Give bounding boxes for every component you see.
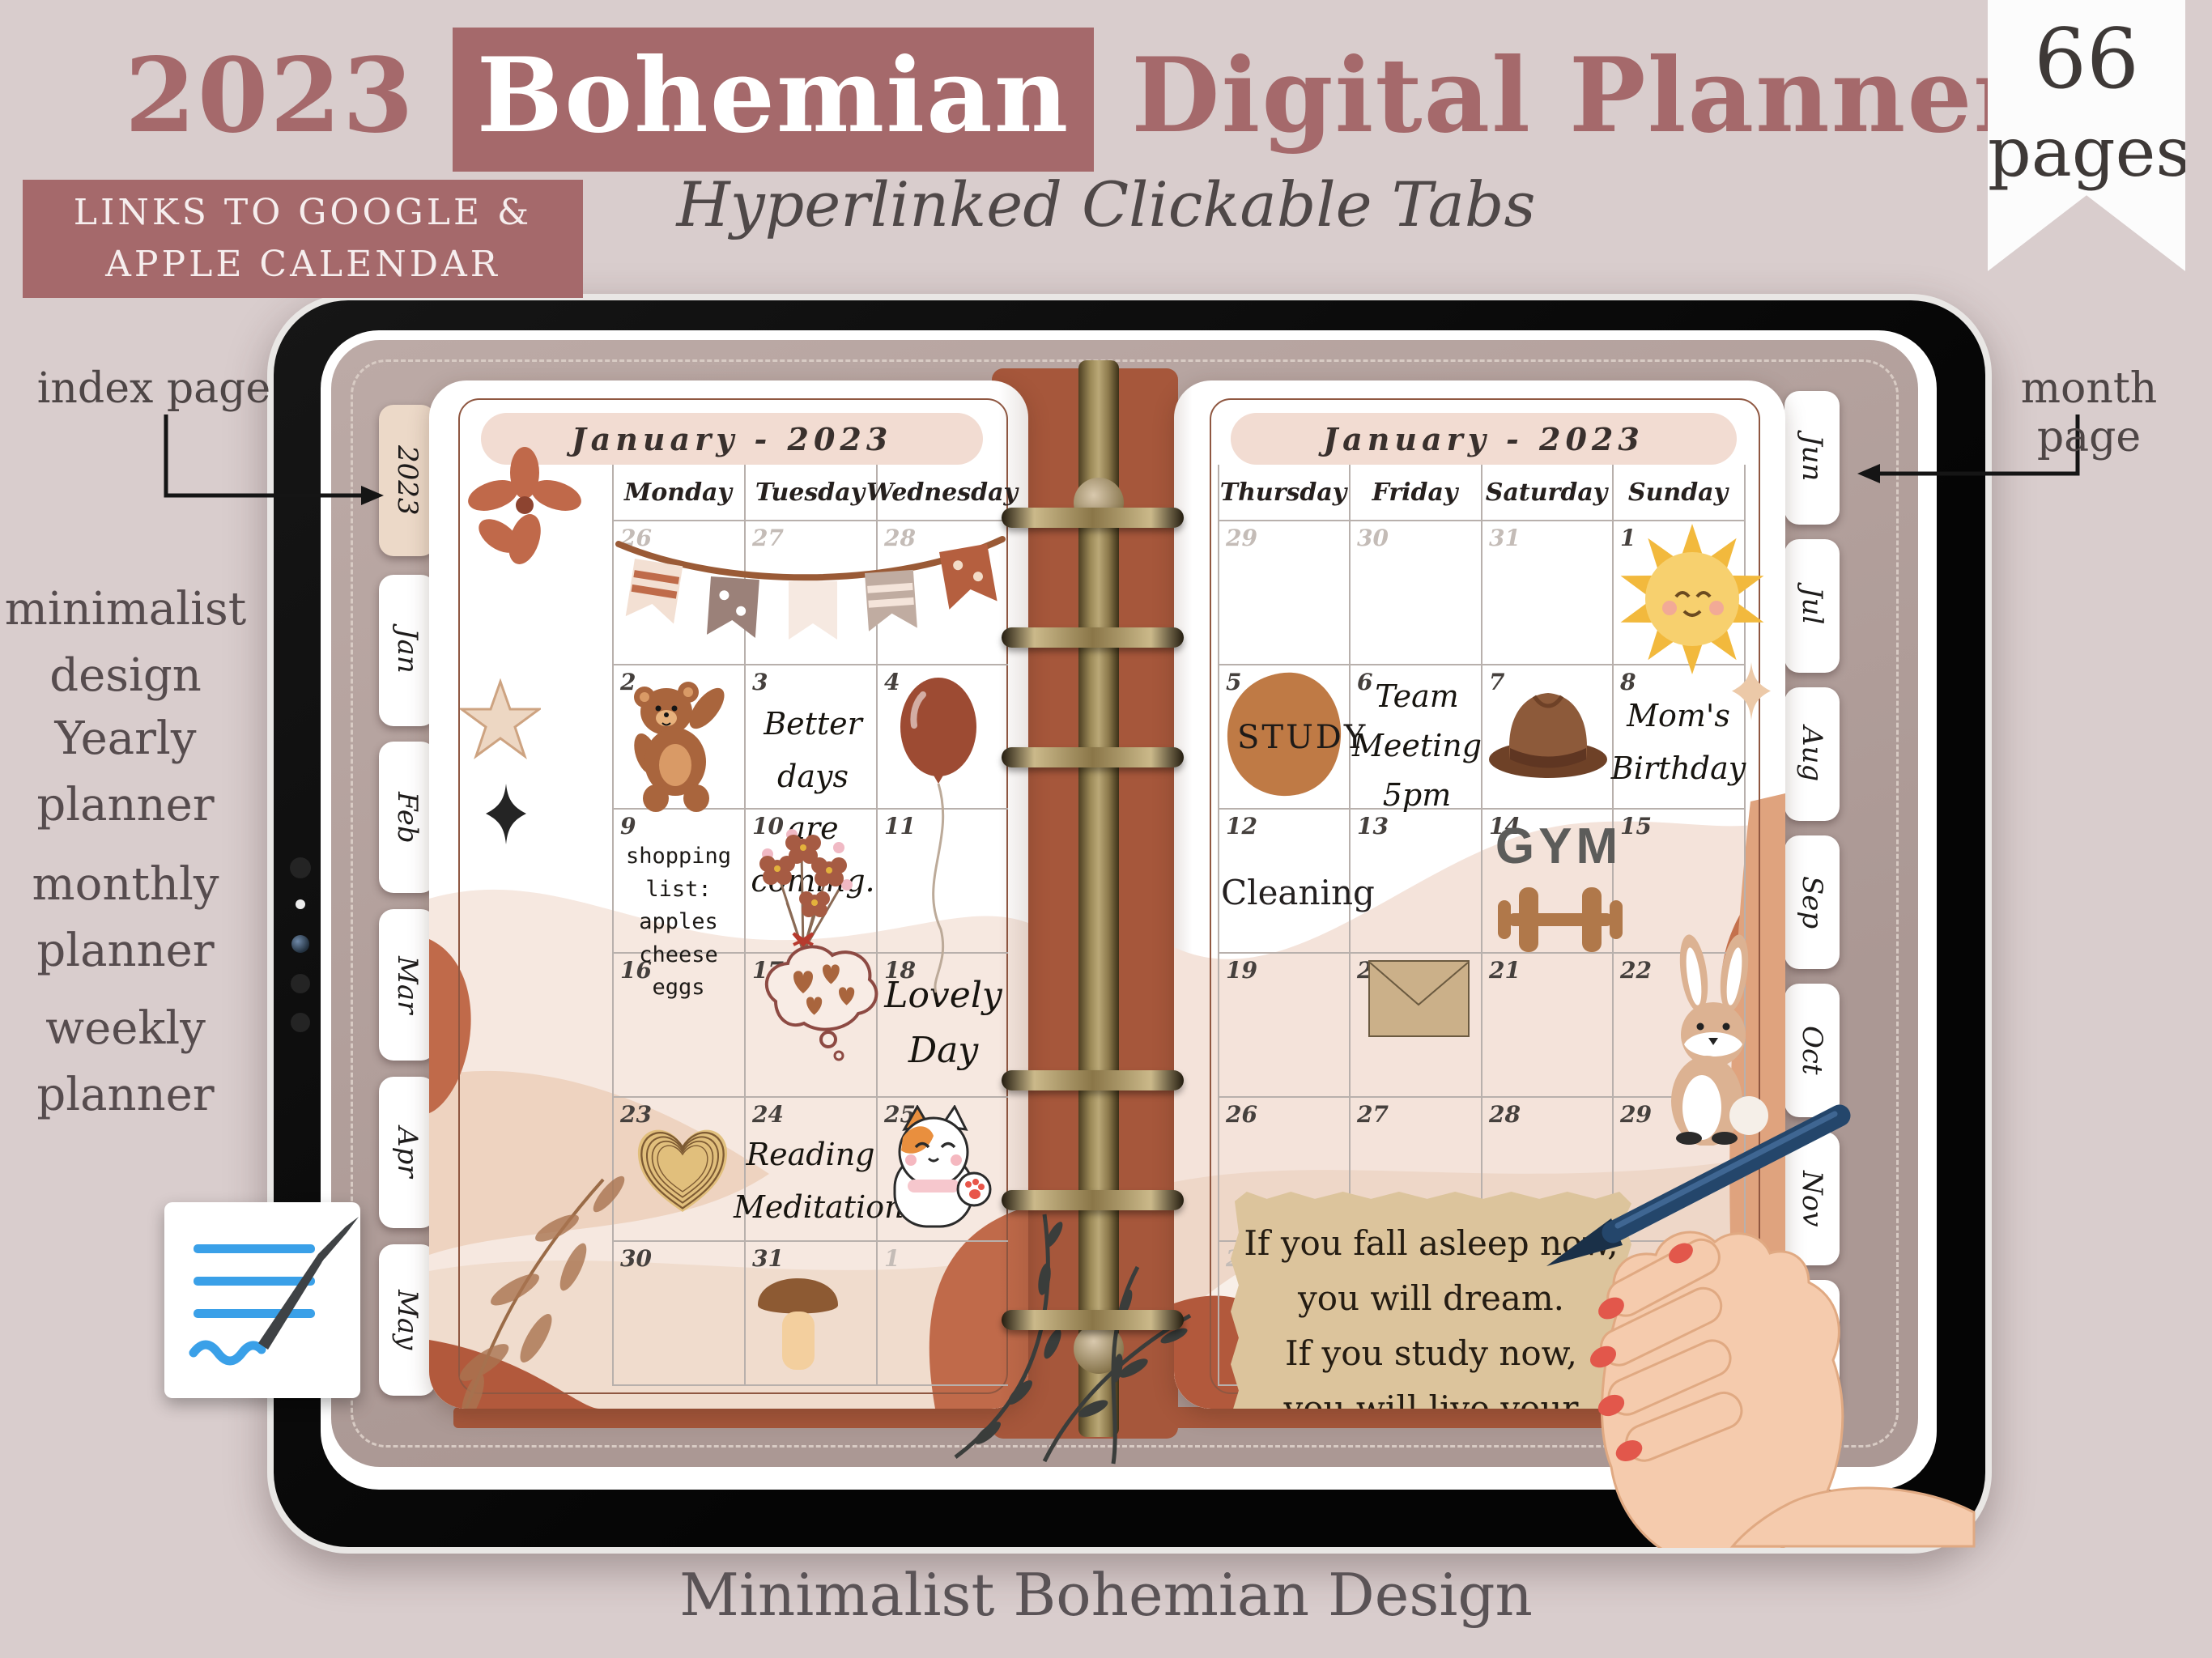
badge-line1: LINKS TO GOOGLE & bbox=[23, 187, 583, 239]
feature-weekly: weekly planner bbox=[0, 996, 251, 1129]
marketing-poster: 2023 Bohemian Digital Planner Hyperlinke… bbox=[0, 0, 2212, 1658]
index-page-arrow bbox=[166, 414, 384, 505]
calendar-links-badge: LINKS TO GOOGLE & APPLE CALENDAR bbox=[23, 180, 583, 298]
footer-caption: Minimalist Bohemian Design bbox=[0, 1561, 2212, 1629]
feature-monthly: monthly planner bbox=[0, 852, 251, 984]
page-count-label: pages bbox=[1988, 113, 2185, 192]
feature-minimalist: minimalist design bbox=[0, 576, 251, 709]
month-page-label: month page bbox=[1967, 364, 2210, 461]
title-year: 2023 bbox=[125, 36, 415, 155]
page-count: 66 bbox=[1988, 11, 2185, 108]
badge-line2: APPLE CALENDAR bbox=[23, 239, 583, 291]
page-title: 2023 Bohemian Digital Planner bbox=[0, 36, 2154, 155]
title-highlight: Bohemian bbox=[453, 28, 1095, 172]
index-page-label: index page bbox=[32, 364, 275, 413]
feature-yearly: Yearly planner bbox=[0, 706, 251, 839]
title-rest: Digital Planner bbox=[1131, 36, 2029, 155]
